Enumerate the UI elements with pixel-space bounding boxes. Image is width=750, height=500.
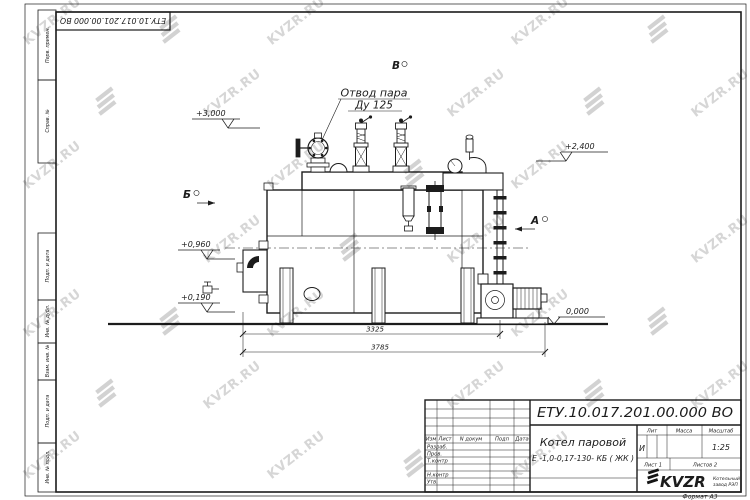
callout-steam-outlet-line1: Отвод пара <box>340 87 407 100</box>
boiler-general-view-drawing: Перв. примен. Справ. № Подп. и дата Инв.… <box>0 0 750 500</box>
row-tkontr: Т.контр <box>427 459 449 465</box>
level-gauge-glass <box>426 181 444 240</box>
water-column <box>401 186 416 231</box>
stamp-inv-dubl: Инв. № дубл. <box>45 305 51 338</box>
elevation-3000-label: +3,000 <box>196 109 226 118</box>
elevation-0960-label: +0,960 <box>181 240 211 249</box>
elevation-2400-label: +2,400 <box>565 142 595 151</box>
row-razrab: Разраб. <box>427 445 447 451</box>
sight-hole <box>304 288 320 301</box>
safety-valve-1 <box>353 115 372 172</box>
sheets-total: Листов 2 <box>692 463 717 469</box>
elevation-0190-label: +0,190 <box>181 293 211 302</box>
kvzr-logo-text: KVZR <box>660 473 706 491</box>
safety-valve-2 <box>393 115 412 172</box>
row-nkontr: Н.контр <box>427 473 449 479</box>
burner-unit <box>237 250 267 292</box>
col-data: Дата <box>514 437 528 443</box>
title-doc-number: ЕТУ.10.017.201.00.000 ВО <box>537 406 733 421</box>
blower-fan-unit <box>477 274 548 324</box>
drawing-sheet: Перв. примен. Справ. № Подп. и дата Инв.… <box>0 0 750 500</box>
scale-value: 1:25 <box>712 443 730 452</box>
massa-label: Масса <box>676 429 693 435</box>
elevation-0000-label: 0,000 <box>566 307 589 316</box>
stamp-podp-data-1: Подп. и дата <box>45 250 51 283</box>
col-izm: Изм <box>426 437 437 443</box>
kvzr-logo-sub1: Котельный <box>713 476 740 482</box>
support-legs <box>280 268 474 323</box>
stamp-vzam-inv: Взам. инв. № <box>45 345 51 378</box>
title-product-name: Котел паровой <box>540 436 626 449</box>
format-label: Формат А3 <box>682 494 717 500</box>
thermowell <box>466 135 486 173</box>
callout-steam-outlet-line2: Ду 125 <box>354 100 393 112</box>
col-list: Лист <box>437 437 452 443</box>
stamp-perv-primen: Перв. примен. <box>45 27 51 63</box>
view-a-label: А <box>530 215 539 227</box>
lit-value: И <box>639 444 645 453</box>
elevation-marks <box>178 119 608 324</box>
sheet-number: Лист 1 <box>643 463 662 469</box>
view-b-label: Б <box>183 189 191 201</box>
outer-border <box>25 4 746 496</box>
title-product-designation: Е -1,0-0,17-130- КБ ( ЖК ) <box>532 454 634 463</box>
rear-header-box <box>443 173 503 190</box>
stamp-inv-podl: Инв. № подл. <box>45 450 51 483</box>
lit-label: Лит <box>646 429 658 435</box>
pressure-gauge <box>448 159 462 173</box>
kvzr-logo: KVZR Котельный завод РЭП <box>644 468 740 491</box>
col-podp: Подп <box>495 437 510 443</box>
view-v-label: В <box>392 60 400 72</box>
masshtab-label: Масштаб <box>709 429 734 435</box>
dimension-3785-label: 3785 <box>371 344 389 352</box>
row-utv: Утв. <box>427 480 438 486</box>
row-prov: Пров. <box>427 452 442 458</box>
steam-outlet-valve <box>296 133 329 172</box>
kvzr-logo-sub2: завод РЭП <box>713 482 738 488</box>
dimension-3325-label: 3325 <box>366 326 384 334</box>
doc-number-top-text: ЕТУ.10.017.201.00.000 ВО <box>60 16 166 25</box>
stamp-podp-data-2: Подп. и дата <box>45 395 51 428</box>
valve-handwheel <box>296 139 300 157</box>
manhole-dome <box>330 164 347 173</box>
col-n-dokum: N докум <box>460 437 482 443</box>
stamp-sprav-no: Справ. № <box>45 109 51 132</box>
